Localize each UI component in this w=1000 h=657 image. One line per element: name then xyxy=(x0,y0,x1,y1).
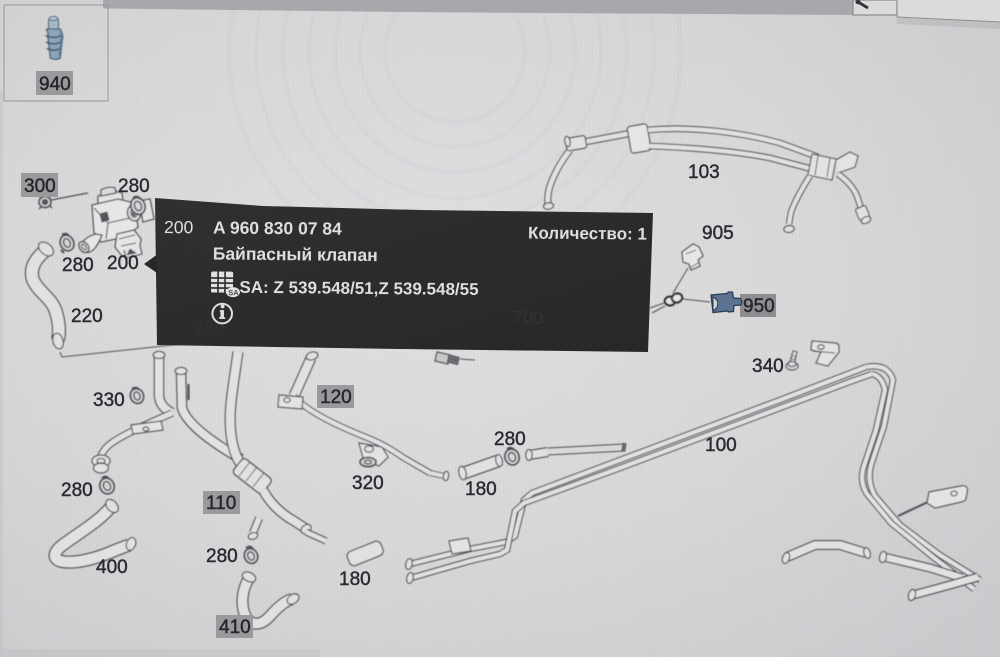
svg-text:280: 280 xyxy=(62,255,94,276)
svg-text:200: 200 xyxy=(164,217,194,237)
svg-text:A 960 830 07 84: A 960 830 07 84 xyxy=(213,217,342,238)
svg-text:905: 905 xyxy=(702,223,734,244)
svg-text:280: 280 xyxy=(194,318,225,339)
svg-text:320: 320 xyxy=(352,473,384,494)
svg-text:940: 940 xyxy=(39,74,71,95)
svg-text:180: 180 xyxy=(465,479,497,500)
svg-text:280: 280 xyxy=(494,429,526,450)
svg-text:Количество: 1: Количество: 1 xyxy=(528,223,647,243)
svg-text:400: 400 xyxy=(96,557,128,578)
svg-text:SA: Z 539.548/51,Z 539.548/55: SA: Z 539.548/51,Z 539.548/55 xyxy=(239,278,478,299)
svg-text:SA: SA xyxy=(228,288,239,297)
svg-text:200: 200 xyxy=(107,253,139,274)
svg-text:220: 220 xyxy=(71,306,103,327)
svg-text:700: 700 xyxy=(513,307,544,328)
svg-text:120: 120 xyxy=(320,387,352,408)
svg-text:180: 180 xyxy=(339,569,371,590)
svg-text:100: 100 xyxy=(705,435,737,456)
svg-text:950: 950 xyxy=(743,296,775,317)
svg-text:103: 103 xyxy=(688,162,720,183)
svg-text:280: 280 xyxy=(206,546,238,567)
svg-text:110: 110 xyxy=(206,493,236,514)
svg-text:Байпасный клапан: Байпасный клапан xyxy=(213,243,378,265)
svg-text:280: 280 xyxy=(118,176,150,197)
svg-text:300: 300 xyxy=(24,176,56,197)
svg-text:410: 410 xyxy=(219,617,251,638)
svg-text:280: 280 xyxy=(61,480,93,501)
svg-text:340: 340 xyxy=(752,356,784,377)
svg-text:330: 330 xyxy=(93,390,125,411)
